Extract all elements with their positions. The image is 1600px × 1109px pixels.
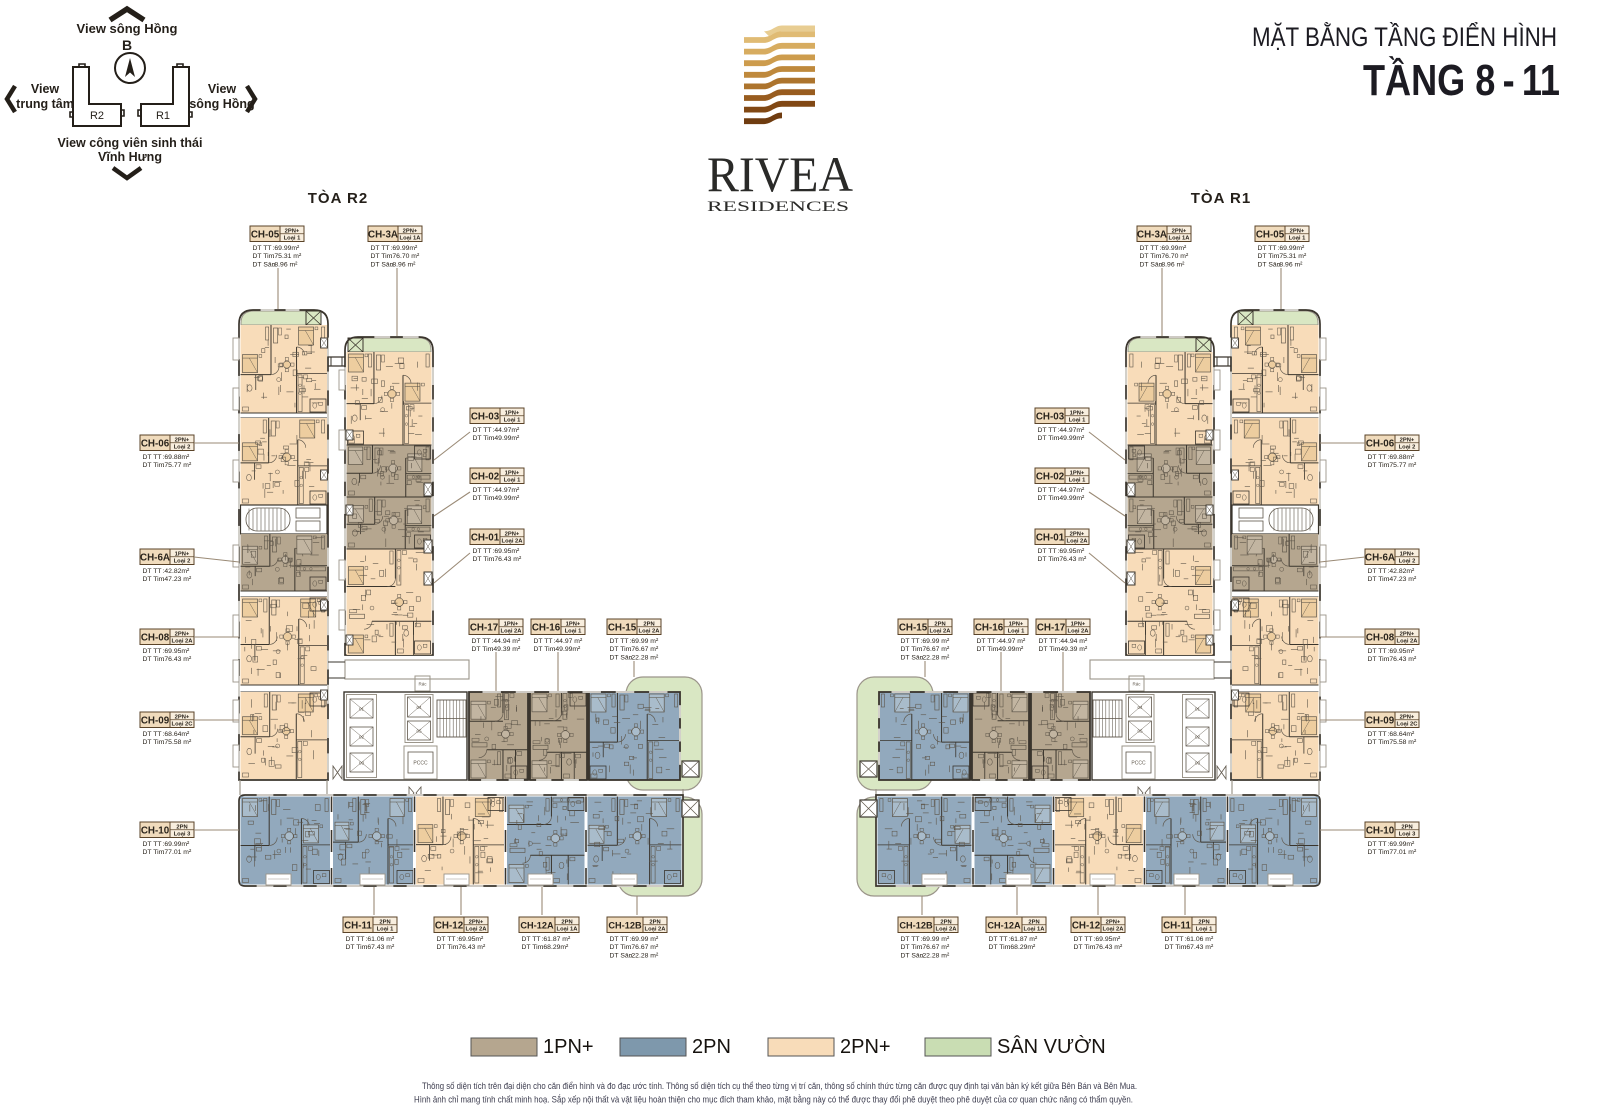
- svg-text:View: View: [208, 82, 237, 96]
- svg-text:DT Tim: DT Tim: [472, 646, 494, 653]
- svg-text:Loại 2: Loại 2: [1399, 559, 1416, 565]
- svg-text:DT Tim: DT Tim: [1258, 253, 1280, 260]
- svg-text:1PN+: 1PN+: [175, 551, 190, 557]
- svg-text:Loại 1A: Loại 1A: [1169, 236, 1191, 242]
- svg-text:TẦNG 8 - 11: TẦNG 8 - 11: [1363, 55, 1560, 105]
- svg-text:DT TT: DT TT: [534, 638, 553, 645]
- svg-text:CH-08: CH-08: [141, 632, 170, 643]
- svg-text:CH-02: CH-02: [471, 471, 500, 482]
- svg-text:DT Tim: DT Tim: [1140, 253, 1162, 260]
- svg-text:2PN+: 2PN+: [469, 919, 484, 925]
- svg-text:DT Tim: DT Tim: [1038, 435, 1060, 442]
- svg-text::69.99 m²: :69.99 m²: [630, 936, 659, 943]
- svg-text::67.43 m²: :67.43 m²: [1185, 944, 1214, 951]
- svg-text:DT Tim: DT Tim: [371, 253, 393, 260]
- svg-text:sông Hồng: sông Hồng: [189, 97, 254, 111]
- svg-text:CH-06: CH-06: [141, 438, 170, 449]
- svg-text:DT Tim: DT Tim: [534, 646, 556, 653]
- svg-text:Rác: Rác: [1132, 682, 1141, 687]
- svg-text:DT TT: DT TT: [1368, 841, 1387, 848]
- svg-text::8.96 m²: :8.96 m²: [391, 261, 417, 268]
- svg-text:CH-12: CH-12: [435, 920, 464, 931]
- svg-text:DT TT: DT TT: [1038, 487, 1057, 494]
- svg-text:2PN+: 2PN+: [505, 531, 520, 537]
- svg-text:2PN+: 2PN+: [285, 228, 300, 234]
- svg-text:2PN: 2PN: [692, 1036, 731, 1058]
- svg-text:DT TT: DT TT: [1368, 454, 1387, 461]
- svg-text::44.97m²: :44.97m²: [493, 427, 521, 434]
- svg-text:DT TT: DT TT: [1368, 568, 1387, 575]
- svg-text:DT TT: DT TT: [610, 638, 629, 645]
- svg-text::69.95m²: :69.95m²: [1058, 548, 1086, 555]
- svg-text:Vĩnh Hưng: Vĩnh Hưng: [98, 150, 162, 164]
- svg-text:CH-03: CH-03: [471, 411, 500, 422]
- svg-text:R2: R2: [90, 110, 104, 122]
- svg-text:1PN+: 1PN+: [1400, 551, 1415, 557]
- svg-text:DT Tim: DT Tim: [977, 646, 999, 653]
- svg-text:DT Tim: DT Tim: [1038, 495, 1060, 502]
- svg-text:Loại 2C: Loại 2C: [1397, 722, 1419, 728]
- svg-text:1PN+: 1PN+: [543, 1036, 594, 1058]
- svg-text:2PN+: 2PN+: [1400, 631, 1415, 637]
- svg-text:CH-3A: CH-3A: [368, 229, 398, 240]
- svg-text:DT Tim: DT Tim: [610, 646, 632, 653]
- svg-text:TÒA R1: TÒA R1: [1191, 189, 1251, 207]
- svg-text:2PN+: 2PN+: [403, 228, 418, 234]
- svg-text::76.43 m²: :76.43 m²: [1388, 656, 1417, 663]
- svg-text::68.29m²: :68.29m²: [1009, 944, 1037, 951]
- svg-text:DT Tim: DT Tim: [1165, 944, 1187, 951]
- svg-text:2PN+: 2PN+: [840, 1036, 891, 1058]
- svg-text::8.96 m²: :8.96 m²: [1160, 261, 1186, 268]
- svg-text:DT Tim: DT Tim: [1368, 576, 1390, 583]
- svg-text:1PN+: 1PN+: [505, 470, 520, 476]
- svg-text:CH-11: CH-11: [1163, 920, 1191, 931]
- svg-text:Loại 1: Loại 1: [377, 927, 395, 933]
- svg-text::76.70 m²: :76.70 m²: [1160, 253, 1189, 260]
- svg-text:DT TT: DT TT: [143, 648, 162, 655]
- svg-text:CH-12B: CH-12B: [608, 920, 642, 930]
- svg-text:DT Tim: DT Tim: [1038, 556, 1060, 563]
- svg-text:DT TT: DT TT: [143, 731, 162, 738]
- svg-text:Loại 1A: Loại 1A: [400, 236, 422, 242]
- svg-text:trung tâm: trung tâm: [16, 97, 74, 111]
- svg-text::44.97 m²: :44.97 m²: [997, 638, 1026, 645]
- svg-text:DT TT: DT TT: [143, 454, 162, 461]
- svg-text::75.77 m²: :75.77 m²: [163, 462, 192, 469]
- svg-text:Loại 1: Loại 1: [1069, 418, 1087, 424]
- svg-text:Loại 2C: Loại 2C: [172, 722, 194, 728]
- svg-text:Loại 2A: Loại 2A: [645, 927, 667, 933]
- svg-text:CH-12A: CH-12A: [520, 920, 554, 930]
- svg-text:CH-17: CH-17: [470, 622, 499, 633]
- svg-text::69.95m²: :69.95m²: [163, 648, 191, 655]
- svg-text:Loại 2: Loại 2: [1399, 445, 1416, 451]
- svg-text::69.99m²: :69.99m²: [163, 841, 191, 848]
- svg-text:Loại 2: Loại 2: [174, 559, 191, 565]
- svg-text:DT Tim: DT Tim: [1368, 656, 1390, 663]
- svg-text:2PN: 2PN: [1401, 824, 1412, 830]
- svg-text::47.23 m²: :47.23 m²: [1388, 576, 1417, 583]
- svg-text::47.23 m²: :47.23 m²: [163, 576, 192, 583]
- svg-text:DT TT: DT TT: [1165, 936, 1184, 943]
- svg-text::22.28 m²: :22.28 m²: [630, 952, 659, 959]
- svg-text:04: 04: [416, 705, 422, 710]
- svg-text:2PN: 2PN: [649, 919, 660, 925]
- svg-text:CH-16: CH-16: [532, 622, 561, 633]
- svg-text:RIVEA: RIVEA: [707, 146, 853, 202]
- svg-text:CH-17: CH-17: [1037, 622, 1066, 633]
- svg-text::76.43 m²: :76.43 m²: [1094, 944, 1123, 951]
- svg-text:DT Tim: DT Tim: [143, 462, 165, 469]
- svg-text:DT Tim: DT Tim: [901, 646, 923, 653]
- svg-text:DT TT: DT TT: [473, 548, 492, 555]
- svg-text:2PN+: 2PN+: [1400, 714, 1415, 720]
- svg-text:Loại 1: Loại 1: [1289, 236, 1307, 242]
- svg-text:2PN+: 2PN+: [175, 437, 190, 443]
- svg-text:DT Tim: DT Tim: [1368, 849, 1390, 856]
- svg-text:05: 05: [416, 729, 422, 734]
- svg-text::75.77 m²: :75.77 m²: [1388, 462, 1417, 469]
- svg-text:DT TT: DT TT: [1368, 731, 1387, 738]
- svg-text:B: B: [122, 37, 132, 53]
- svg-text:DT Tim: DT Tim: [143, 739, 165, 746]
- svg-text:2PN+: 2PN+: [1172, 228, 1187, 234]
- svg-text:2PN: 2PN: [1028, 919, 1039, 925]
- svg-text:CH-02: CH-02: [1036, 471, 1065, 482]
- svg-text::67.43 m²: :67.43 m²: [366, 944, 395, 951]
- svg-text:1PN+: 1PN+: [566, 621, 581, 627]
- svg-text::61.87 m²: :61.87 m²: [542, 936, 571, 943]
- svg-text:DT Tim: DT Tim: [143, 849, 165, 856]
- svg-text:CH-6A: CH-6A: [140, 552, 170, 563]
- svg-text:2PN+: 2PN+: [1070, 531, 1085, 537]
- svg-text:DT Tim: DT Tim: [473, 556, 495, 563]
- svg-text::75.31 m²: :75.31 m²: [1278, 253, 1307, 260]
- svg-text::69.99m²: :69.99m²: [391, 245, 419, 252]
- svg-text::8.96 m²: :8.96 m²: [1278, 261, 1304, 268]
- svg-text:02: 02: [1195, 735, 1201, 740]
- svg-text:2PN: 2PN: [940, 919, 951, 925]
- svg-text:DT TT: DT TT: [1258, 245, 1277, 252]
- svg-text::75.58 m²: :75.58 m²: [1388, 739, 1417, 746]
- svg-text:DT TT: DT TT: [437, 936, 456, 943]
- svg-text:DT Tim: DT Tim: [473, 495, 495, 502]
- svg-text::69.95m²: :69.95m²: [1388, 648, 1416, 655]
- svg-text::49.99m²: :49.99m²: [493, 435, 521, 442]
- svg-text:03: 03: [359, 761, 365, 766]
- svg-text:DT Tim: DT Tim: [1039, 646, 1061, 653]
- svg-text::69.99m²: :69.99m²: [273, 245, 301, 252]
- svg-text:Loại 2: Loại 2: [174, 445, 191, 451]
- svg-text:05: 05: [1137, 729, 1143, 734]
- svg-text:DT Tim: DT Tim: [437, 944, 459, 951]
- svg-text::69.99 m²: :69.99 m²: [921, 936, 950, 943]
- svg-text:Loại 1A: Loại 1A: [1024, 927, 1046, 933]
- svg-text:DT Tim: DT Tim: [989, 944, 1011, 951]
- svg-text:Hình ảnh chỉ mang tính chất mi: Hình ảnh chỉ mang tính chất minh hoạ. Sắ…: [414, 1095, 1133, 1105]
- svg-text:Loại 2A: Loại 2A: [1397, 639, 1419, 645]
- svg-text::44.94 m²: :44.94 m²: [1059, 638, 1088, 645]
- svg-text::75.58 m²: :75.58 m²: [163, 739, 192, 746]
- svg-text::8.96 m²: :8.96 m²: [273, 261, 299, 268]
- svg-text:CH-05: CH-05: [1256, 229, 1285, 240]
- svg-text::75.31 m²: :75.31 m²: [273, 253, 302, 260]
- svg-text:DT Tim: DT Tim: [522, 944, 544, 951]
- svg-text:Loại 1: Loại 1: [1008, 629, 1026, 635]
- svg-text:DT Tim: DT Tim: [473, 435, 495, 442]
- svg-text:CH-01: CH-01: [1036, 532, 1065, 543]
- svg-text:CH-12A: CH-12A: [987, 920, 1021, 930]
- svg-text::68.29m²: :68.29m²: [542, 944, 570, 951]
- svg-text:DT TT: DT TT: [1039, 638, 1058, 645]
- svg-text::68.64m²: :68.64m²: [163, 731, 191, 738]
- svg-text::69.95m²: :69.95m²: [1094, 936, 1122, 943]
- svg-text:PCCC: PCCC: [413, 761, 428, 767]
- svg-text:RESIDENCES: RESIDENCES: [707, 199, 849, 215]
- svg-text:View công viên sinh thái: View công viên sinh thái: [58, 136, 203, 150]
- svg-text::76.43 m²: :76.43 m²: [457, 944, 486, 951]
- svg-text:2PN+: 2PN+: [175, 631, 190, 637]
- svg-text::69.88m²: :69.88m²: [1388, 454, 1416, 461]
- svg-text:1PN+: 1PN+: [1070, 410, 1085, 416]
- svg-text:Rác: Rác: [418, 682, 427, 687]
- svg-text::76.67 m²: :76.67 m²: [630, 944, 659, 951]
- svg-text:1PN+: 1PN+: [504, 621, 519, 627]
- svg-text::61.06 m²: :61.06 m²: [366, 936, 395, 943]
- svg-text:R1: R1: [156, 110, 170, 122]
- svg-text::44.97m²: :44.97m²: [1058, 487, 1086, 494]
- svg-text:2PN: 2PN: [643, 621, 654, 627]
- svg-text::61.06 m²: :61.06 m²: [1185, 936, 1214, 943]
- svg-text:CH-08: CH-08: [1366, 632, 1395, 643]
- svg-text:DT TT: DT TT: [989, 936, 1008, 943]
- svg-text::76.43 m²: :76.43 m²: [1058, 556, 1087, 563]
- svg-text:CH-12: CH-12: [1072, 920, 1101, 931]
- svg-text:DT Tim: DT Tim: [610, 944, 632, 951]
- svg-text:View: View: [31, 82, 60, 96]
- svg-text::77.01 m²: :77.01 m²: [163, 849, 192, 856]
- svg-text:Loại 1: Loại 1: [1196, 927, 1214, 933]
- svg-text::42.82m²: :42.82m²: [1388, 568, 1416, 575]
- svg-text:DT TT: DT TT: [522, 936, 541, 943]
- svg-text:DT TT: DT TT: [977, 638, 996, 645]
- svg-text:DT TT: DT TT: [1038, 548, 1057, 555]
- svg-text:DT TT: DT TT: [143, 841, 162, 848]
- svg-text:01: 01: [1195, 707, 1201, 712]
- svg-text::69.99m²: :69.99m²: [1278, 245, 1306, 252]
- svg-text:CH-11: CH-11: [344, 920, 372, 931]
- svg-text::69.99 m²: :69.99 m²: [921, 638, 950, 645]
- svg-text:1PN+: 1PN+: [1071, 621, 1086, 627]
- svg-text:02: 02: [359, 735, 365, 740]
- svg-text:CH-10: CH-10: [1366, 825, 1395, 836]
- svg-text:Loại 2A: Loại 2A: [501, 629, 523, 635]
- svg-text:View sông Hồng: View sông Hồng: [77, 21, 178, 36]
- svg-text:Loại 1: Loại 1: [1069, 478, 1087, 484]
- svg-text:DT Tim: DT Tim: [253, 253, 275, 260]
- svg-text:CH-15: CH-15: [608, 622, 637, 633]
- svg-text::76.43 m²: :76.43 m²: [163, 656, 192, 663]
- svg-text:Loại 2A: Loại 2A: [930, 629, 952, 635]
- svg-text:DT Tim: DT Tim: [901, 944, 923, 951]
- svg-text::49.99m²: :49.99m²: [1058, 435, 1086, 442]
- svg-text:DT TT: DT TT: [1368, 648, 1387, 655]
- svg-text:01: 01: [359, 707, 365, 712]
- svg-text:CH-09: CH-09: [1366, 715, 1395, 726]
- svg-text:DT Tim: DT Tim: [1074, 944, 1096, 951]
- svg-text:DT Tim: DT Tim: [1368, 462, 1390, 469]
- svg-text::69.99m²: :69.99m²: [1388, 841, 1416, 848]
- svg-text::76.67 m²: :76.67 m²: [921, 944, 950, 951]
- svg-text:DT Tim: DT Tim: [346, 944, 368, 951]
- svg-text:DT TT: DT TT: [143, 568, 162, 575]
- svg-text:CH-3A: CH-3A: [1137, 229, 1167, 240]
- svg-text:1PN+: 1PN+: [1070, 470, 1085, 476]
- svg-text:DT TT: DT TT: [473, 487, 492, 494]
- svg-text::69.88m²: :69.88m²: [163, 454, 191, 461]
- svg-text:Loại 2A: Loại 2A: [936, 927, 958, 933]
- svg-text:DT TT: DT TT: [253, 245, 272, 252]
- svg-text::42.82m²: :42.82m²: [163, 568, 191, 575]
- svg-text:MẶT BẰNG TẦNG ĐIỂN HÌNH: MẶT BẰNG TẦNG ĐIỂN HÌNH: [1252, 21, 1557, 52]
- svg-text:CH-15: CH-15: [899, 622, 928, 633]
- svg-text:DT TT: DT TT: [473, 427, 492, 434]
- svg-text::49.99m²: :49.99m²: [1058, 495, 1086, 502]
- svg-text:04: 04: [1137, 705, 1143, 710]
- svg-text:Loại 3: Loại 3: [174, 832, 192, 838]
- svg-text:DT Tim: DT Tim: [1368, 739, 1390, 746]
- svg-text::68.64m²: :68.64m²: [1388, 731, 1416, 738]
- svg-text:Loại 2A: Loại 2A: [502, 539, 524, 545]
- svg-text::69.95m²: :69.95m²: [457, 936, 485, 943]
- svg-text:DT TT: DT TT: [1140, 245, 1159, 252]
- svg-text:2PN+: 2PN+: [1106, 919, 1121, 925]
- svg-text:Loại 2A: Loại 2A: [466, 927, 488, 933]
- svg-text:2PN: 2PN: [934, 621, 945, 627]
- svg-text::44.97 m²: :44.97 m²: [554, 638, 583, 645]
- svg-text::69.99 m²: :69.99 m²: [630, 638, 659, 645]
- svg-text:Loại 1: Loại 1: [284, 236, 302, 242]
- svg-text:2PN: 2PN: [176, 824, 187, 830]
- svg-text:CH-09: CH-09: [141, 715, 170, 726]
- svg-text:DT TT: DT TT: [1074, 936, 1093, 943]
- svg-text::69.99m²: :69.99m²: [1160, 245, 1188, 252]
- svg-text:PCCC: PCCC: [1131, 761, 1146, 767]
- svg-text:2PN+: 2PN+: [1290, 228, 1305, 234]
- svg-text:03: 03: [1195, 761, 1201, 766]
- svg-text:2PN+: 2PN+: [175, 714, 190, 720]
- svg-text:Loại 1: Loại 1: [504, 418, 522, 424]
- svg-text::22.28 m²: :22.28 m²: [630, 654, 659, 661]
- svg-text:Loại 2A: Loại 2A: [639, 629, 661, 635]
- svg-text:Loại 2A: Loại 2A: [1068, 629, 1090, 635]
- svg-text:Loại 2A: Loại 2A: [172, 639, 194, 645]
- svg-text:2PN+: 2PN+: [1400, 437, 1415, 443]
- svg-text:TÒA R2: TÒA R2: [308, 189, 368, 207]
- svg-text:DT TT: DT TT: [901, 638, 920, 645]
- svg-text:CH-01: CH-01: [471, 532, 500, 543]
- svg-text::44.97m²: :44.97m²: [493, 487, 521, 494]
- svg-text:SÂN VƯỜN: SÂN VƯỜN: [997, 1035, 1106, 1058]
- svg-text:Thông số diện tích trên đại di: Thông số diện tích trên đại diện cho căn…: [422, 1081, 1137, 1091]
- svg-text:CH-12B: CH-12B: [899, 920, 933, 930]
- svg-text:2PN: 2PN: [379, 919, 390, 925]
- svg-text:DT TT: DT TT: [1038, 427, 1057, 434]
- svg-text:CH-16: CH-16: [975, 622, 1004, 633]
- svg-text::76.70 m²: :76.70 m²: [391, 253, 420, 260]
- svg-text:CH-03: CH-03: [1036, 411, 1065, 422]
- svg-text:Loại 2A: Loại 2A: [1067, 539, 1089, 545]
- svg-text:DT TT: DT TT: [901, 936, 920, 943]
- svg-text:DT Tim: DT Tim: [143, 576, 165, 583]
- svg-text:Loại 1A: Loại 1A: [557, 927, 579, 933]
- svg-text::44.94 m²: :44.94 m²: [492, 638, 521, 645]
- svg-text:DT TT: DT TT: [472, 638, 491, 645]
- svg-text:DT TT: DT TT: [610, 936, 629, 943]
- svg-text::22.28 m²: :22.28 m²: [921, 654, 950, 661]
- svg-text:CH-05: CH-05: [251, 229, 280, 240]
- svg-text::49.99m²: :49.99m²: [493, 495, 521, 502]
- svg-text:Loại 1: Loại 1: [565, 629, 583, 635]
- svg-text:CH-6A: CH-6A: [1365, 552, 1395, 563]
- svg-text:CH-06: CH-06: [1366, 438, 1395, 449]
- svg-text:1PN+: 1PN+: [1009, 621, 1024, 627]
- svg-text:DT TT: DT TT: [371, 245, 390, 252]
- svg-text:2PN: 2PN: [1198, 919, 1209, 925]
- svg-text::22.28 m²: :22.28 m²: [921, 952, 950, 959]
- svg-text:Loại 1: Loại 1: [504, 478, 522, 484]
- svg-text::61.87 m²: :61.87 m²: [1009, 936, 1038, 943]
- svg-text:Loại 3: Loại 3: [1399, 832, 1417, 838]
- svg-text:Loại 2A: Loại 2A: [1103, 927, 1125, 933]
- svg-text::69.95m²: :69.95m²: [493, 548, 521, 555]
- svg-text:DT TT: DT TT: [346, 936, 365, 943]
- svg-text::76.67 m²: :76.67 m²: [921, 646, 950, 653]
- svg-text:1PN+: 1PN+: [505, 410, 520, 416]
- svg-text::76.43 m²: :76.43 m²: [493, 556, 522, 563]
- svg-text::44.97m²: :44.97m²: [1058, 427, 1086, 434]
- svg-text:CH-10: CH-10: [141, 825, 170, 836]
- svg-text:DT Tim: DT Tim: [143, 656, 165, 663]
- svg-text::77.01 m²: :77.01 m²: [1388, 849, 1417, 856]
- svg-text::76.67 m²: :76.67 m²: [630, 646, 659, 653]
- svg-text:2PN: 2PN: [561, 919, 572, 925]
